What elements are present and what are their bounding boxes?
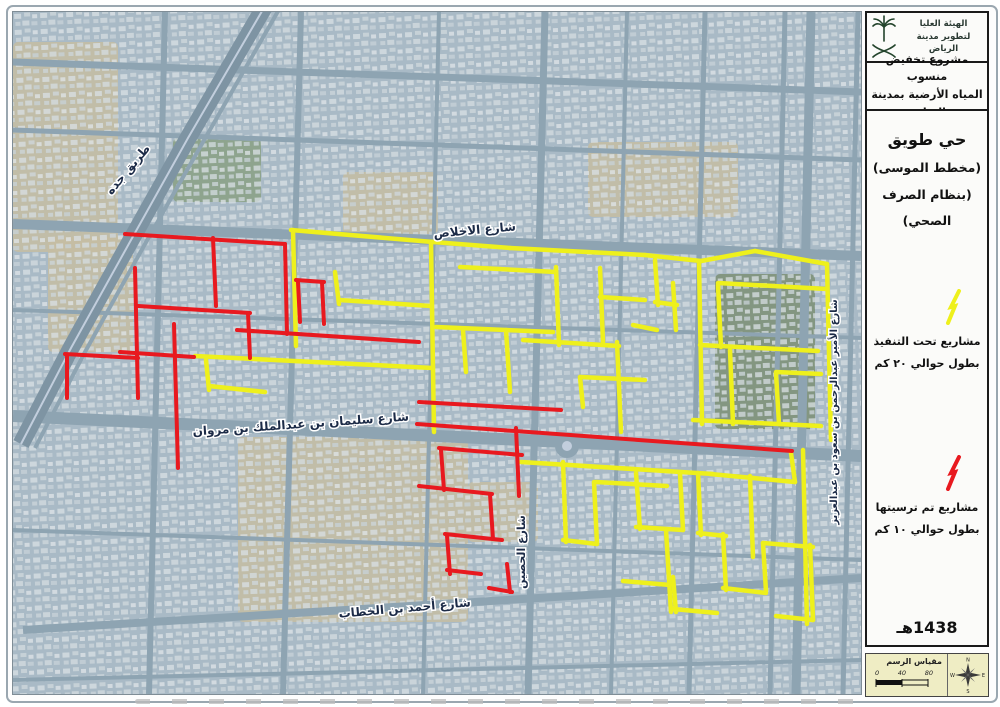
project-title-line1: مشروع تخفيض منسوب	[867, 51, 987, 86]
scanned-map-sheet: { "sidebar": { "logo": { "org_line1": "ا…	[0, 0, 1000, 707]
under-construction-segment	[594, 482, 597, 544]
under-construction-segment	[556, 267, 559, 345]
district-title: حي طويق (مخطط الموسى) (بنظام الصرف الصحي…	[867, 125, 987, 234]
page-edge-artifacts	[135, 699, 865, 704]
legend-panel: حي طويق (مخطط الموسى) (بنظام الصرف الصحي…	[865, 109, 989, 647]
under-construction-segment	[600, 268, 603, 342]
under-construction-segment	[730, 350, 733, 424]
satellite-map: طريق جدهشارع الاخلاصشارع سليمان بن عبدال…	[12, 11, 862, 695]
legend-under-construction: مشاريع تحت التنفيذ بطول حوالي ٢٠ كم	[867, 289, 987, 375]
under-construction-segment	[776, 372, 821, 374]
under-construction-segment	[563, 462, 566, 542]
under-construction-segment	[763, 543, 766, 591]
district-subtitle-plan: (مخطط الموسى)	[867, 155, 987, 181]
legend-under-construction-line1: مشاريع تحت التنفيذ	[867, 331, 987, 353]
under-construction-segment	[636, 527, 683, 530]
scale-title: مقياس الرسم	[886, 657, 942, 666]
under-construction-segment	[655, 260, 658, 305]
awarded-segment	[322, 282, 324, 324]
under-construction-segment	[810, 545, 813, 620]
legend-awarded-line1: مشاريع تم ترسيتها	[867, 497, 987, 519]
under-construction-segment	[600, 297, 645, 300]
under-construction-segment	[750, 476, 753, 557]
under-construction-segment	[698, 473, 701, 535]
project-title-panel: مشروع تخفيض منسوب المياه الأرضية بمدينة …	[865, 61, 989, 111]
awarded-segment	[298, 282, 300, 322]
scale-tick-40: 40	[898, 669, 906, 677]
red-line-symbol-icon	[945, 455, 963, 491]
compass-e: E	[982, 673, 985, 679]
under-construction-segment	[680, 473, 683, 530]
legend-awarded-line2: بطول حوالي ١٠ كم	[867, 519, 987, 541]
under-construction-segment	[776, 373, 779, 424]
district-subtitle-system: (بنظام الصرف الصحي)	[867, 182, 987, 235]
awarded-segment	[248, 313, 250, 358]
under-construction-segment	[580, 377, 645, 380]
compass-rose-icon: N E S W	[950, 656, 986, 694]
compass-s: S	[966, 689, 969, 694]
scale-tick-80: 80	[925, 669, 933, 677]
legend-awarded: مشاريع تم ترسيتها بطول حوالي ١٠ كم	[867, 455, 987, 541]
compass-cell: N E S W	[947, 654, 988, 696]
map-sheet-frame: طريق جدهشارع الاخلاصشارع سليمان بن عبدال…	[6, 5, 998, 703]
map-canvas: طريق جدهشارع الاخلاصشارع سليمان بن عبدال…	[13, 12, 861, 694]
compass-n: N	[966, 658, 970, 664]
under-construction-segment	[463, 330, 466, 372]
scale-tick-labels: 0 40 80	[875, 669, 933, 677]
awarded-segment	[285, 244, 287, 334]
hijri-year: 1438هـ	[867, 618, 987, 637]
under-construction-segment	[718, 285, 721, 347]
yellow-line-symbol-icon	[945, 289, 963, 325]
under-construction-segment	[673, 283, 676, 330]
under-construction-segment	[673, 577, 676, 612]
compass-w: W	[950, 673, 955, 679]
scale-bar-cell: مقياس الرسم 0 40 80	[866, 654, 947, 696]
street-label: شارع الأمير عبدالرحمن بن سعود بن عبدالعز…	[827, 299, 840, 526]
awarded-segment	[296, 280, 324, 282]
under-construction-segment	[580, 377, 583, 407]
street-label: شارع الحصين	[515, 515, 528, 589]
under-construction-segment	[723, 534, 726, 590]
legend-under-construction-line2: بطول حوالي ٢٠ كم	[867, 353, 987, 375]
scale-bar-icon	[875, 679, 931, 687]
under-construction-segment	[293, 230, 296, 346]
scale-tick-0: 0	[875, 669, 879, 677]
district-name: حي طويق	[867, 125, 987, 155]
authority-name-line1: الهيئة العليا	[902, 18, 985, 31]
title-block-sidebar: الهيئة العليا لتطوير مدينة الرياض مشروع …	[864, 9, 992, 697]
scale-panel: N E S W مقياس الرسم 0 40 80	[865, 653, 989, 697]
